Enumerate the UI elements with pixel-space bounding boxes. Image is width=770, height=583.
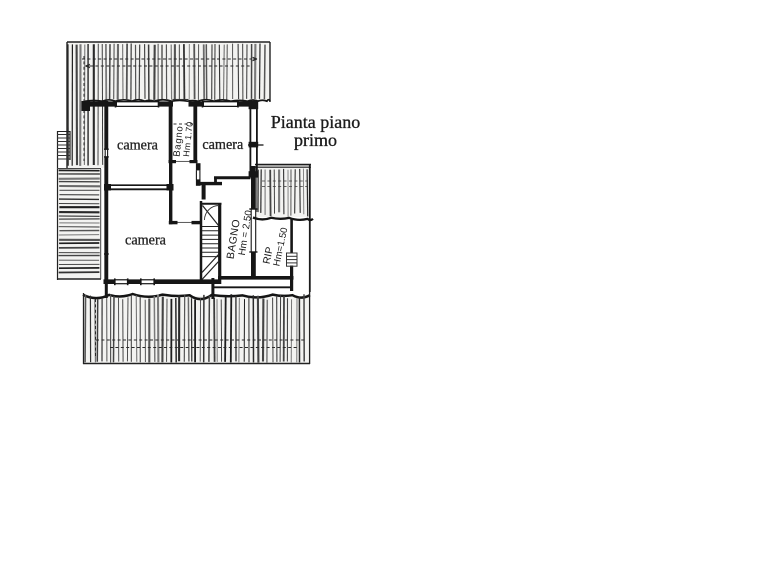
svg-text:camera: camera [202, 137, 244, 153]
svg-text:camera: camera [125, 233, 167, 249]
svg-text:primo: primo [294, 130, 337, 150]
svg-text:camera: camera [117, 137, 159, 153]
